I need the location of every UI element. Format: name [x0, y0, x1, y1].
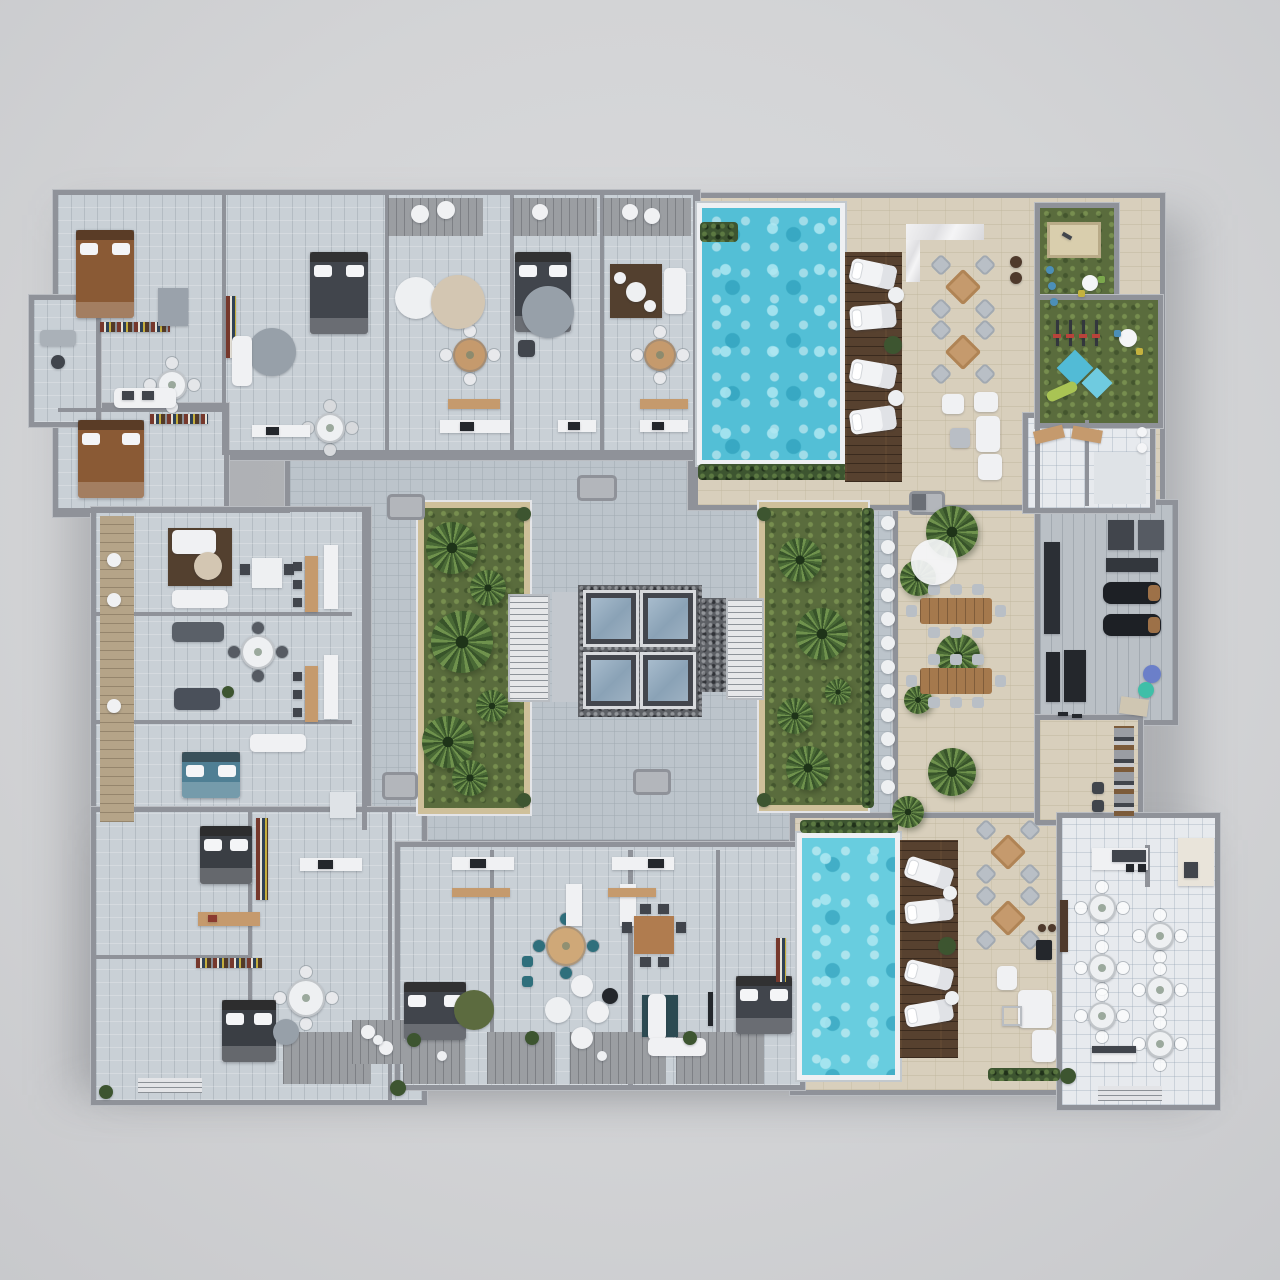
unit3-kitchen-counter [440, 420, 510, 433]
dining-table-3-chair-2 [1096, 1031, 1108, 1043]
skylight-se [643, 655, 693, 706]
courtyard-planter-1 [517, 507, 531, 521]
gym-machine-2 [1138, 520, 1164, 550]
dining-bench-top [1092, 1046, 1136, 1053]
unit3-bar [448, 399, 500, 409]
lefta-stool-3 [293, 598, 302, 607]
lefta-chair-1 [240, 564, 250, 575]
bm-sq-chair-1 [640, 904, 651, 914]
bm-wood-shelf-right [608, 888, 656, 897]
bed-unit1-pillow-1 [80, 243, 98, 255]
gym-cable-row [1106, 558, 1158, 572]
palm-left-garden-1 [426, 522, 478, 574]
bm-sofa-right-h [648, 1038, 706, 1056]
unit2-stove [266, 427, 279, 435]
skylight-sw [586, 655, 636, 706]
leftb-stool-3 [293, 708, 302, 717]
terrace-long-table-1-chair-right [995, 605, 1006, 617]
bed-bottommid-left-headboard [404, 982, 466, 992]
unit3-balcony-chair-2 [437, 201, 455, 219]
gym-mat-1 [1046, 652, 1060, 702]
lefta-bar [305, 556, 318, 612]
terrace-long-table-2-chair-bot-0 [928, 697, 940, 708]
bm-sq-chair-4 [658, 957, 669, 967]
bm-pouf [602, 988, 618, 1004]
apt-table-left-b-chair-2 [252, 670, 264, 682]
kid-figure-1 [1046, 266, 1054, 274]
dining-table-6-center [1156, 1040, 1164, 1048]
unit1-horizontal-wall [58, 408, 224, 412]
bl-stove [318, 860, 333, 869]
left-block-wall-a [96, 612, 352, 616]
gym-treadmill-1-belt [1148, 585, 1160, 601]
stool-row-12 [881, 780, 895, 794]
bm-stove-left [470, 859, 486, 868]
wing-table [51, 355, 65, 369]
leftb-counter [324, 655, 338, 719]
unit5-balcony-chair-2 [644, 208, 660, 224]
bed-unit4-pillow-1 [519, 265, 537, 277]
bl-bar-items [208, 915, 217, 922]
grill-pot-2 [1048, 924, 1056, 932]
palm-right-garden-5 [786, 746, 830, 790]
apt-table-bottommid-center [562, 942, 570, 950]
leftc-sofa [250, 734, 306, 752]
unit4-stove [568, 422, 580, 430]
bed-bottomleft-2 [222, 1000, 276, 1062]
bed-left-c-teal-headboard [182, 752, 240, 762]
terrace-long-table-2-chair-top-2 [972, 654, 984, 665]
stool-row-10 [881, 732, 895, 746]
left-block-north-wall [58, 508, 290, 513]
bm-tv-right [708, 992, 713, 1026]
bm-sq-chair-6 [676, 922, 686, 933]
apartment-left-wing [34, 300, 96, 422]
dining-table-3-chair-1 [1096, 989, 1108, 1001]
leftb-sofa-2 [174, 688, 220, 710]
pool-bar-counter-leg [906, 240, 920, 282]
second-pool [797, 833, 900, 1080]
lounge-top-table [950, 428, 970, 448]
terrace-long-table-1-chair-top-1 [950, 584, 962, 595]
apt-table-unit3-chair-4 [488, 349, 500, 361]
top-units-south-wall [222, 450, 695, 455]
main-pool-hedge-notch [700, 222, 738, 242]
stool-row-11 [881, 756, 895, 770]
courtyard-planter-3 [757, 507, 771, 521]
deck-top-side-table-2 [888, 390, 904, 406]
stairs-east [728, 600, 762, 698]
apt-table-bottomleft-center [302, 994, 310, 1002]
bed-bottomleft-2-pillow-2 [254, 1013, 272, 1025]
balcony-left-chair-3 [107, 699, 121, 713]
unit5-stove [652, 422, 664, 430]
grill-station [1036, 940, 1052, 960]
dining-plant [1060, 1068, 1076, 1084]
courtyard-planter-2 [517, 793, 531, 807]
stool-row-8 [881, 684, 895, 698]
stool-row-2 [881, 540, 895, 554]
apt-table-unit5-chair-2 [654, 372, 666, 384]
palm-right-garden-3 [777, 698, 813, 734]
terrace-long-table-1-chair-bot-0 [928, 627, 940, 638]
palm-left-garden-4 [476, 690, 508, 722]
dining-table-5-center [1156, 986, 1164, 994]
bm-armchair-3 [571, 1027, 593, 1049]
deck-bottom-table-2 [945, 991, 959, 1005]
bed-unit1 [76, 230, 134, 318]
apt-table-unit2-chair-1 [324, 400, 336, 412]
lounge-top-chair-2 [974, 392, 998, 412]
dining-table-6-chair-4 [1175, 1038, 1187, 1050]
bottommid-wall-c [716, 850, 720, 1035]
unit2-sofa [232, 336, 252, 386]
bed-unit2 [310, 252, 368, 334]
terrace-long-table-2-chair-bot-1 [950, 697, 962, 708]
gym-dumbbell-2 [1072, 714, 1082, 718]
lefta-stool-1 [293, 562, 302, 571]
deck-bottom-plant [938, 937, 956, 955]
bm-balcony-table-2 [597, 1051, 607, 1061]
unit4-balcony-chair-1 [532, 204, 548, 220]
unit5-chair-2 [644, 300, 656, 312]
swing-seat-row-3 [1079, 334, 1087, 338]
pool-bar-counter [906, 224, 984, 240]
apt-table-bottomleft-chair-4 [326, 992, 338, 1004]
deck-top-side-table-1 [888, 287, 904, 303]
bed-unit1-lower-pillow-1 [82, 433, 100, 445]
dining-table-6-chair-2 [1154, 1059, 1166, 1071]
terrace-long-table-1-chair-top-0 [928, 584, 940, 595]
unit2-rug [248, 328, 296, 376]
palm-left-garden-6 [452, 760, 488, 796]
balcony-top-unit3 [388, 198, 483, 236]
lounge-bottom-chair [997, 966, 1017, 990]
terrace-long-table-2 [920, 668, 992, 694]
lounger-bottom-2-pillow [907, 905, 916, 920]
rooftop-ac-2 [580, 478, 614, 498]
gym-ball-teal [1138, 682, 1154, 698]
dining-table-5-chair-3 [1133, 984, 1145, 996]
bl-wardrobe-vertical [256, 818, 268, 900]
bed-unit1-throw [76, 302, 134, 318]
wing-sofa [40, 330, 76, 346]
outdoor-kiosk [1114, 726, 1134, 816]
stool-row-5 [881, 612, 895, 626]
changing-toilet-1 [1137, 427, 1147, 437]
bm-balcony-plant-2 [525, 1031, 539, 1045]
stool-row-6 [881, 636, 895, 650]
dining-table-1-chair-2 [1096, 923, 1108, 935]
bm-sofa-right-v [648, 994, 666, 1040]
bm-sq-chair-3 [640, 957, 651, 967]
apt-table-left-b-center [254, 648, 262, 656]
bed-left-c-teal-pillow-2 [218, 765, 236, 777]
dining-table-1-chair-3 [1075, 902, 1087, 914]
unit4-armchair [518, 340, 535, 357]
lounge-bottom-chaise [1032, 1030, 1056, 1062]
umbrella-terrace [911, 539, 957, 585]
bed-bottommid-right [736, 976, 792, 1034]
bm-rug-green [454, 990, 494, 1030]
apt-table-unit5-center [656, 351, 664, 359]
left-block-east-wall [362, 512, 367, 830]
bed-bottommid-right-pillow-2 [770, 989, 788, 1001]
dining-table-2-chair-4 [1117, 962, 1129, 974]
bm-kitchen-counter-right [612, 857, 674, 870]
terrace-long-table-2-chair-top-1 [950, 654, 962, 665]
entry-steps-bottomleft [138, 1078, 202, 1093]
lounger-top-4-pillow [852, 414, 862, 431]
dining-stove-1 [1126, 864, 1134, 872]
terrace-long-table-1-chair-bot-1 [950, 627, 962, 638]
palm-left-garden-2 [470, 570, 506, 606]
lounge-top-chair-1 [942, 394, 964, 414]
bm-square-table [634, 916, 674, 954]
stairs-west [510, 596, 548, 700]
kids-table-1 [1082, 275, 1098, 291]
rooftop-ac-3 [385, 775, 415, 797]
unit3-rug [431, 275, 485, 329]
grill-pot-1 [1038, 924, 1046, 932]
gym-storage-rack [1044, 542, 1060, 634]
bed-unit1-lower-pillow-2 [122, 433, 140, 445]
leftb-sofa [172, 622, 224, 642]
kiosk-chair-2 [1092, 800, 1104, 812]
leftb-stool-1 [293, 672, 302, 681]
lefta-sq-table [252, 558, 282, 588]
unit3-stove [460, 422, 474, 431]
apt-table-bottommid-chair-3 [533, 940, 545, 952]
swing-post-row-1 [1056, 320, 1059, 346]
bed-unit1-lower-throw [78, 482, 144, 498]
unit3-balcony-chair-1 [411, 205, 429, 223]
bed-unit2-pillow-1 [314, 265, 332, 277]
lounge-bottom-sofa [1018, 990, 1052, 1028]
bm-teal-chair-2 [522, 976, 533, 987]
bm-sq-chair-5 [622, 922, 632, 933]
swing-seat-row-2 [1066, 334, 1074, 338]
stool-row-1 [881, 516, 895, 530]
bm-coffee-table [545, 997, 571, 1023]
bm-balcony-plant-3 [683, 1031, 697, 1045]
apt-table-bottomleft-chair-2 [300, 1018, 312, 1030]
bed-bottommid-right-throw [736, 1018, 792, 1034]
swing-post-row-2 [1069, 320, 1072, 346]
bl-balcony-table [373, 1035, 383, 1045]
dining-wine-shelf [1060, 900, 1068, 952]
unit1-sofa-pillow-1 [122, 391, 134, 400]
skylight-nw [586, 593, 636, 644]
main-pool [697, 203, 845, 465]
apt-table-unit2-center [326, 424, 334, 432]
second-pool-hedge-north [800, 820, 898, 833]
palm-terrace-6 [892, 796, 924, 828]
unit5-balcony-chair-1 [622, 204, 638, 220]
dining-table-5-chair-4 [1175, 984, 1187, 996]
dining-kitchen-appliance [1184, 862, 1198, 878]
palm-right-garden-1 [778, 538, 822, 582]
dining-island-top [1112, 850, 1146, 862]
bm-wardrobe-right [776, 938, 786, 982]
apt-table-unit2-chair-4 [346, 422, 358, 434]
balcony-left-chair-2 [107, 593, 121, 607]
gym-dumbbell-1 [1058, 712, 1068, 716]
core-gravel-ext [700, 598, 726, 692]
kiosk-chair-1 [1092, 782, 1104, 794]
leftb-bar [305, 666, 318, 722]
leftb-stool-2 [293, 690, 302, 699]
bl-balcony-plant [99, 1085, 113, 1099]
kids-chair-yellow-2 [1136, 348, 1143, 355]
bed-unit1-pillow-2 [112, 243, 130, 255]
dining-table-4-chair-4 [1175, 930, 1187, 942]
apt-table-bottommid-chair-2 [560, 967, 572, 979]
bm-wood-shelf-left [452, 888, 510, 897]
lounge-top-sofa [976, 416, 1000, 452]
playground-lawn-lower [1040, 300, 1158, 423]
unit5-sofa [664, 268, 686, 314]
kid-figure-3 [1050, 298, 1058, 306]
dining-table-5-chair-1 [1154, 963, 1166, 975]
bed-bottomleft-1 [200, 826, 252, 884]
swing-seat-row-4 [1092, 334, 1100, 338]
lounge-bottom-table [1002, 1006, 1022, 1026]
unit2-kitchen-counter [252, 425, 310, 437]
floor-plan-image [0, 0, 1280, 1280]
dining-table-2-chair-3 [1075, 962, 1087, 974]
bm-balcony-table-1 [437, 1051, 447, 1061]
bed-unit1-headboard [76, 230, 134, 240]
unit5-bar [640, 399, 688, 409]
dining-table-2-chair-1 [1096, 941, 1108, 953]
bm-armchair-1 [571, 975, 593, 997]
bed-unit1-lower-headboard [78, 420, 144, 430]
balcony-left-chair-1 [107, 553, 121, 567]
unit1-sofa-pillow-2 [142, 391, 154, 400]
lounger-bottom-1-pillow [907, 860, 919, 876]
apt-table-bottommid-chair-4 [587, 940, 599, 952]
lounger-top-2-pillow [852, 310, 861, 327]
lounger-top-2 [849, 303, 897, 331]
terrace-long-table-2-chair-right [995, 675, 1006, 687]
dining-table-4-chair-3 [1133, 930, 1145, 942]
terrace-long-table-1-chair-left [906, 605, 917, 617]
planter-pot-2 [1010, 272, 1022, 284]
gym-treadmill-2-belt [1148, 617, 1160, 633]
sandbox [1050, 225, 1098, 255]
lefta-sofa [172, 530, 216, 554]
apt-table-unit3-chair-2 [464, 373, 476, 385]
bm-stove-right [648, 859, 664, 868]
unit5-coffee-table [626, 282, 646, 302]
playground-west-wall [1035, 205, 1040, 510]
dining-table-5-chair-2 [1154, 1005, 1166, 1017]
terrace-long-table-1-chair-top-2 [972, 584, 984, 595]
shower-stalls [1094, 452, 1146, 504]
apt-table-bottomleft-chair-1 [300, 966, 312, 978]
dining-table-3-chair-4 [1117, 1010, 1129, 1022]
palm-right-garden-4 [825, 679, 851, 705]
bed-unit2-headboard [310, 252, 368, 262]
apt-table-unit3-center [466, 351, 474, 359]
bed-bottomleft-2-pillow-1 [226, 1013, 244, 1025]
lounger-top-3-pillow [852, 363, 863, 380]
deck-bottom-table-1 [943, 886, 957, 900]
gym-mat-2 [1064, 650, 1086, 702]
unit4-rug [522, 286, 574, 338]
balcony-top-unit4 [513, 198, 597, 236]
apt-table-left-b-chair-4 [276, 646, 288, 658]
leftc-shower [330, 792, 356, 818]
swing-post-row-3 [1082, 320, 1085, 346]
planter-pot-1 [1010, 256, 1022, 268]
rooftop-ac-1 [390, 497, 422, 517]
swing-seat-row-1 [1053, 334, 1061, 338]
rooftop-ac-4 [636, 772, 668, 792]
lounger-bottom-3-pillow [907, 963, 918, 979]
kids-table-2 [1119, 329, 1137, 347]
apt-table-unit5-chair-3 [631, 349, 643, 361]
terrace-long-table-1 [920, 598, 992, 624]
stool-row-7 [881, 660, 895, 674]
bl-rug [273, 1019, 299, 1045]
kid-figure-2 [1048, 282, 1056, 290]
gym-machine-1 [1108, 520, 1134, 550]
bl-wardrobe-2 [196, 958, 262, 968]
kids-chair-yellow [1078, 290, 1085, 297]
palm-right-garden-2 [796, 608, 848, 660]
skylight-ne [643, 593, 693, 644]
dining-table-3-chair-3 [1075, 1010, 1087, 1022]
dining-table-1-chair-1 [1096, 881, 1108, 893]
terrace-long-table-2-chair-bot-2 [972, 697, 984, 708]
bed-unit4-pillow-2 [549, 265, 567, 277]
dining-table-6-chair-1 [1154, 1017, 1166, 1029]
bed-bottommid-left-pillow-1 [408, 995, 426, 1007]
terrace-long-table-1-chair-bot-2 [972, 627, 984, 638]
bed-bottomleft-1-pillow-2 [230, 839, 248, 851]
bed-unit2-pillow-2 [346, 265, 364, 277]
bed-bottomleft-1-headboard [200, 826, 252, 836]
apt-table-unit3-chair-3 [440, 349, 452, 361]
unit5-chair-1 [614, 272, 626, 284]
bm-sq-chair-2 [658, 904, 669, 914]
stool-row-3 [881, 564, 895, 578]
palm-left-garden-3 [431, 611, 493, 673]
gym-ball-blue [1143, 665, 1161, 683]
apt-table-left-b-chair-3 [228, 646, 240, 658]
dining-table-4-chair-2 [1154, 951, 1166, 963]
bed-left-c-teal-throw [182, 782, 240, 798]
second-pool-hedge-south [988, 1068, 1060, 1081]
bed-bottommid-right-pillow-1 [740, 989, 758, 1001]
leftb-plant [222, 686, 234, 698]
bed-bottomleft-2-headboard [222, 1000, 276, 1010]
dining-stove-2 [1138, 864, 1146, 872]
unit1-breakfast-table-chair-1 [166, 357, 178, 369]
bm-teal-chair-1 [522, 956, 533, 967]
lounger-bottom-4-pillow [907, 1008, 917, 1023]
dining-table-4-chair-1 [1154, 909, 1166, 921]
deck-top-plant [884, 336, 902, 354]
terrace-waste-bin [912, 494, 926, 510]
bed-unit1-lower [78, 420, 144, 498]
bm-armchair-2 [587, 1001, 609, 1023]
bed-bottomleft-1-throw [200, 868, 252, 884]
dining-table-2-center [1098, 964, 1106, 972]
courtyard-planter-4 [757, 793, 771, 807]
